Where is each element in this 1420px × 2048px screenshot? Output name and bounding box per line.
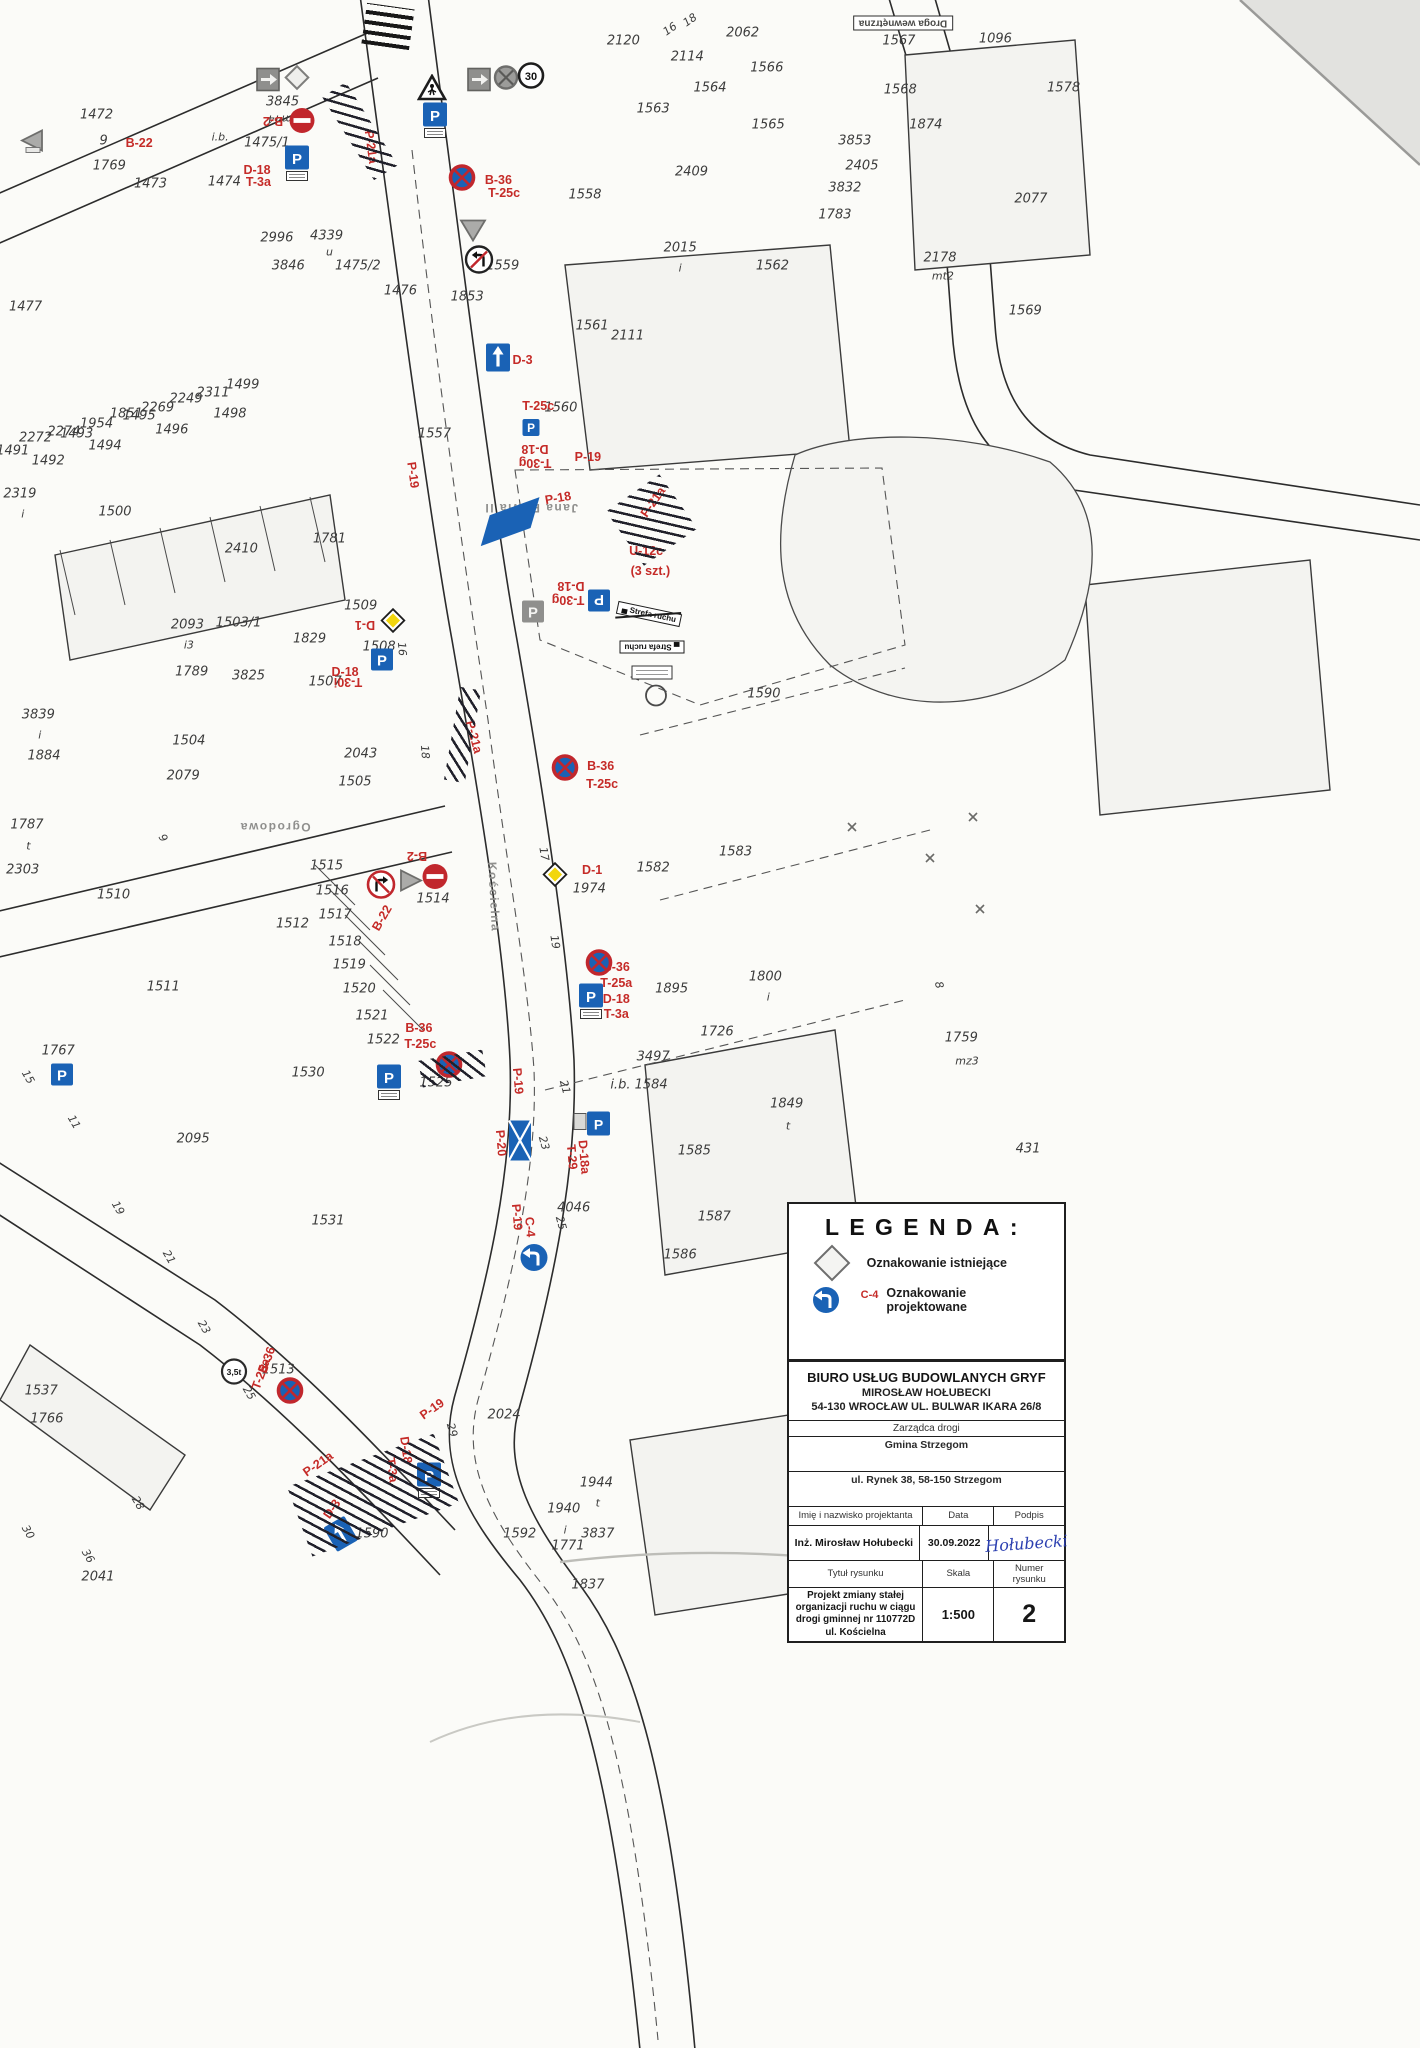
plot-number-label: 1569: [1009, 304, 1042, 319]
plot-number-label: 2409: [675, 165, 708, 180]
traffic-zone-end-sign-icon: ▄ Strefa ruchu: [616, 601, 682, 627]
plot-number-label: 1829: [293, 631, 326, 646]
park-marker-icon: [924, 851, 936, 869]
parking-sign-icon: P: [284, 144, 310, 187]
street-name-box: Droga wewnętrzna: [853, 15, 953, 30]
plot-number-label: 2043: [344, 746, 377, 761]
park-marker-icon: [974, 902, 986, 920]
plot-number-label: 15: [19, 1068, 37, 1087]
sign-code-label: D-18: [557, 579, 584, 593]
plot-number-label: 1853: [451, 289, 484, 304]
plot-number-label: 21: [160, 1248, 178, 1267]
no-stopping-sign-icon: [448, 164, 476, 197]
drawing-title: Projekt zmiany stałej organizacji ruchu …: [789, 1588, 924, 1641]
plot-number-label: 1585: [678, 1143, 711, 1158]
no-entry-sign-icon: [421, 862, 449, 895]
sign-code-label: P-19: [575, 450, 601, 464]
plot-number-label: 1974: [573, 881, 606, 896]
plot-number-label: 1522: [367, 1033, 400, 1048]
title-block: BIURO USŁUG BUDOWLANYCH GRYF MIROSŁAW HO…: [787, 1360, 1066, 1643]
plot-number-label: 1516: [316, 883, 349, 898]
sign-code-label: B-2: [407, 849, 427, 863]
plot-number-label: 2114: [671, 50, 704, 65]
no-right-turn-sign-icon: [366, 869, 396, 904]
parking-sign-with-plates-icon: P: [422, 101, 448, 144]
plot-number-label: t: [786, 1120, 790, 1133]
plot-number-label: 9: [100, 134, 108, 149]
plot-number-label: 1566: [750, 60, 783, 75]
svg-text:30: 30: [525, 71, 537, 83]
plot-number-label: i: [564, 1523, 567, 1536]
street-name-label: Kościelna: [485, 862, 503, 933]
plot-number-label: 1531: [311, 1213, 344, 1228]
plot-number-label: 1562: [756, 259, 789, 274]
plot-number-label: 19: [109, 1199, 127, 1218]
plot-number-label: 30: [19, 1523, 37, 1542]
plot-number-label: 1564: [693, 81, 726, 96]
plot-number-label: 3497: [637, 1049, 670, 1064]
parking-sign-icon: P: [50, 1063, 74, 1092]
plot-number-label: 1590: [747, 687, 780, 702]
sign-code-label: T-25c: [586, 777, 618, 791]
plot-number-label: 16: [395, 642, 409, 657]
svg-text:P: P: [384, 1070, 394, 1087]
company-owner: MIROSŁAW HOŁUBECKI: [793, 1387, 1060, 1399]
plot-number-label: 1726: [701, 1025, 734, 1040]
plot-number-label: i.b.: [212, 131, 229, 144]
plot-number-label: i: [767, 991, 770, 1004]
plot-number-label: 2120: [607, 33, 640, 48]
sign-code-label: T-25c: [522, 399, 554, 413]
sign-code-label: D-18: [522, 442, 549, 456]
reserved-parking-sign-icon: P: [573, 1111, 611, 1142]
plot-number-label: 3853: [838, 134, 871, 149]
plot-number-label: 2041: [81, 1569, 114, 1584]
priority-road-sign-icon: [541, 860, 569, 893]
sign-code-label: B-22: [369, 902, 395, 932]
plot-number-label: 1771: [551, 1539, 584, 1554]
plot-number-label: 1500: [98, 505, 131, 520]
yield-sign-existing-icon: [459, 219, 487, 248]
existing-arrow-sign-icon: [466, 66, 492, 97]
sign-code-label: (3 szt.): [631, 564, 671, 578]
parking-sign-with-plate-icon: P: [376, 1064, 402, 1107]
plot-number-label: 1537: [25, 1383, 58, 1398]
plot-number-label: 1583: [719, 844, 752, 859]
designer-header: Imię i nazwisko projektanta: [789, 1507, 924, 1525]
plot-number-label: t: [26, 839, 30, 852]
street-name-label: Ogrodowa: [240, 820, 311, 834]
svg-text:P: P: [586, 989, 596, 1006]
plot-number-label: 1940: [547, 1502, 580, 1517]
park-marker-icon: [967, 810, 979, 828]
no-left-turn-sign-icon: [464, 245, 494, 280]
plot-number-label: 1504: [172, 734, 205, 749]
plot-number-label: 1492: [32, 453, 65, 468]
plot-number-label: 2303: [6, 863, 39, 878]
plot-number-label: 1783: [818, 208, 851, 223]
priority-road-sign-icon: [379, 606, 407, 639]
drawing-title-header: Tytuł rysunku: [789, 1561, 924, 1587]
plot-number-label: 1472: [80, 107, 113, 122]
sign-code-label: T-25c: [404, 1037, 436, 1051]
plot-number-label: 1567: [882, 33, 915, 48]
date-header: Data: [923, 1507, 994, 1525]
plot-number-label: 18: [681, 11, 700, 30]
plot-number-label: 1520: [343, 982, 376, 997]
plot-number-label: 25: [553, 1214, 569, 1231]
plot-number-label: i3: [184, 639, 194, 652]
plot-number-label: 1586: [664, 1248, 697, 1263]
sign-code-label: B-36: [405, 1021, 432, 1035]
plot-number-label: 1568: [884, 83, 917, 98]
sign-code-label: T-25c: [488, 186, 520, 200]
plot-number-label: 1496: [155, 423, 188, 438]
plot-number-label: 19: [548, 934, 563, 950]
plot-number-label: 1475/2: [335, 259, 381, 274]
plot-number-label: 1473: [134, 177, 167, 192]
plot-number-label: 1518: [329, 935, 362, 950]
plot-number-label: 1895: [655, 982, 688, 997]
plot-number-label: 1800: [749, 969, 782, 984]
sign-code-label: T-3a: [604, 1007, 629, 1021]
plot-number-label: 1884: [27, 748, 60, 763]
plot-number-label: 1874: [909, 117, 942, 132]
plot-number-label: 1477: [9, 300, 42, 315]
weight-limit-plate-icon: 3,5t: [220, 1358, 248, 1391]
plot-number-label: 11: [65, 1113, 83, 1132]
sign-code-label: T-30g: [552, 593, 585, 607]
plot-number-label: 1519: [333, 957, 366, 972]
svg-text:P: P: [594, 591, 604, 607]
one-way-sign-icon: [485, 343, 511, 378]
plot-number-label: 23: [536, 1134, 552, 1151]
plot-number-label: 36: [79, 1547, 97, 1566]
sign-code-label: B-2: [263, 114, 283, 128]
plot-number-label: 1503/1: [216, 615, 262, 630]
parking-sign-icon: P: [587, 584, 611, 613]
plot-number-label: 3837: [581, 1526, 614, 1541]
sign-code-label: P-19: [417, 1396, 447, 1423]
hatched-road-marking: [606, 475, 697, 566]
sign-code-label: P-19: [404, 461, 422, 489]
plot-number-label: 1558: [568, 187, 601, 202]
existing-parking-sign-icon: P: [521, 600, 545, 629]
legend-item-existing: Oznakowanie istniejące: [811, 1250, 1050, 1276]
plot-number-label: 29: [443, 1421, 459, 1438]
plot-number-label: 1789: [175, 664, 208, 679]
sign-code-label: D-3: [512, 353, 532, 367]
legend-item-label: Oznakowanie istniejące: [867, 1256, 1007, 1270]
plot-number-label: 2405: [845, 158, 878, 173]
plot-number-label: 1510: [97, 887, 130, 902]
plot-number-label: 2079: [167, 769, 200, 784]
number-header: Numer rysunku: [994, 1561, 1064, 1587]
plot-number-label: 1563: [637, 101, 670, 116]
c4-sign-icon: [811, 1285, 867, 1315]
plot-number-label: 1561: [576, 318, 609, 333]
plot-number-label: 1511: [147, 980, 180, 995]
road-admin-name: Gmina Strzegom: [789, 1437, 1064, 1472]
signature-header: Podpis: [994, 1507, 1064, 1525]
legend-panel: LEGENDA: Oznakowanie istniejące C-4 Ozna…: [787, 1202, 1066, 1361]
plot-number-label: 2015: [664, 240, 697, 255]
traffic-plan-sheet: 1472917691473i.b.14743845m441475/1299643…: [0, 0, 1420, 2048]
plot-number-label: 1499: [226, 378, 259, 393]
company-block: BIURO USŁUG BUDOWLANYCH GRYF MIROSŁAW HO…: [789, 1362, 1064, 1421]
plot-number-label: 1582: [637, 861, 670, 876]
legend-title: LEGENDA:: [789, 1214, 1064, 1241]
drawing-number: 2: [994, 1588, 1064, 1641]
plot-number-label: mz3: [955, 1054, 979, 1067]
scale-header: Skala: [923, 1561, 994, 1587]
sign-code-label: D-1: [355, 618, 375, 632]
plot-number-label: 3825: [232, 668, 265, 683]
painted-envelope-marking: [507, 1118, 533, 1167]
plot-number-label: 28: [129, 1494, 147, 1513]
plot-number-label: 1578: [1047, 81, 1080, 96]
svg-text:P: P: [58, 1068, 68, 1084]
road-admin-header: Zarządca drogi: [789, 1421, 1064, 1437]
plot-number-label: 1512: [276, 916, 309, 931]
svg-text:P: P: [430, 108, 440, 125]
sign-code-label: B-36: [587, 759, 614, 773]
plot-number-label: 1759: [945, 1031, 978, 1046]
existing-no-stopping-sign-icon: [493, 64, 519, 95]
existing-arrow-sign-icon: [255, 66, 281, 97]
plot-number-label: 1521: [355, 1008, 388, 1023]
plot-number-label: 1505: [338, 775, 371, 790]
legend-item-projected: C-4 Oznakowanie projektowane: [811, 1285, 1050, 1315]
plot-number-label: 1515: [310, 859, 343, 874]
parking-sign-icon: P: [522, 418, 541, 442]
sign-code-label: P-19: [510, 1068, 526, 1096]
plot-number-label: 1592: [503, 1526, 536, 1541]
sign-code-label: T-30i: [334, 675, 363, 689]
zebra-crossing: [361, 3, 414, 50]
signature-value: Hołubecki: [988, 1523, 1065, 1562]
manhole-circle: [644, 684, 668, 713]
plot-number-label: 23: [195, 1318, 213, 1337]
plot-number-label: i: [38, 729, 41, 742]
sign-plate-icon: [631, 660, 673, 680]
plot-number-label: 2093: [171, 617, 204, 632]
sign-code-label: D-1: [582, 863, 602, 877]
plot-number-label: 1494: [89, 439, 122, 454]
plot-number-label: 1474: [208, 175, 241, 190]
plot-number-label: 3832: [828, 181, 861, 196]
plot-number-label: 21: [557, 1079, 573, 1096]
plot-number-label: 1769: [93, 158, 126, 173]
plot-number-label: 2062: [726, 25, 759, 40]
traffic-zone-sign-icon: ▄ Strefa ruchu: [619, 641, 684, 654]
plot-number-label: 1498: [213, 406, 246, 421]
yield-sign-existing-icon: [18, 128, 44, 159]
plot-number-label: i.b. 1584: [610, 1078, 667, 1093]
svg-text:P: P: [528, 606, 538, 622]
hatched-road-marking: [323, 82, 399, 180]
no-stopping-sign-icon: [585, 948, 613, 981]
plot-number-label: 1767: [42, 1043, 75, 1058]
plot-number-label: 1787: [10, 818, 43, 833]
plot-number-label: 2024: [488, 1408, 521, 1423]
plot-number-label: 4339: [310, 228, 343, 243]
company-address: 54-130 WROCŁAW UL. BULWAR IKARA 26/8: [793, 1401, 1060, 1413]
road-admin-address: ul. Rynek 38, 58-150 Strzegom: [789, 1472, 1064, 1507]
existing-priority-sign-icon: [284, 64, 310, 95]
plot-number-label: i: [21, 508, 24, 521]
map-annotations: 1472917691473i.b.14743845m441475/1299643…: [0, 0, 1420, 2048]
svg-text:P: P: [377, 653, 387, 669]
no-stopping-sign-icon: [276, 1376, 304, 1409]
plot-number-label: 1530: [292, 1066, 325, 1081]
no-stopping-sign-icon: [551, 754, 579, 787]
legend-item-label: Oznakowanie projektowane: [886, 1286, 1050, 1314]
plot-number-label: 9: [156, 831, 171, 844]
speed-limit-30-sign-icon: 30: [517, 61, 545, 94]
svg-text:P: P: [527, 422, 535, 435]
plot-number-label: 3846: [272, 259, 305, 274]
plot-number-label: 2996: [260, 230, 293, 245]
plot-number-label: 1944: [580, 1475, 613, 1490]
plot-number-label: 1517: [319, 908, 352, 923]
svg-text:P: P: [594, 1117, 603, 1133]
plot-number-label: 1491: [0, 443, 29, 458]
park-marker-icon: [846, 820, 858, 838]
sign-code-label: T-30g: [519, 456, 552, 470]
hatched-road-marking: [418, 1049, 487, 1087]
plot-number-label: 2311: [196, 386, 229, 401]
parking-sign-icon: P: [370, 647, 394, 676]
plot-number-label: 2319: [3, 486, 36, 501]
sign-code-label: C-4: [522, 1216, 538, 1237]
plot-number-label: 1766: [30, 1412, 63, 1427]
plot-number-label: 2095: [177, 1131, 210, 1146]
plot-number-label: 8: [931, 980, 945, 990]
plot-number-label: 1954: [80, 416, 113, 431]
plot-number-label: 4046: [557, 1201, 590, 1216]
plot-number-label: 1509: [344, 599, 377, 614]
plot-number-label: 1476: [384, 283, 417, 298]
plot-number-label: 3839: [22, 707, 55, 722]
svg-text:3,5t: 3,5t: [227, 1367, 242, 1377]
plot-number-label: 1587: [698, 1209, 731, 1224]
plot-number-label: 2410: [225, 541, 258, 556]
company-name: BIURO USŁUG BUDOWLANYCH GRYF: [793, 1370, 1060, 1385]
plot-number-label: mt2: [932, 270, 954, 283]
plot-number-label: 1849: [770, 1096, 803, 1111]
plot-number-label: 2111: [611, 328, 644, 343]
c4-sign-icon: [519, 1242, 549, 1277]
svg-text:P: P: [292, 151, 302, 168]
sign-code-label: T-29: [564, 1144, 580, 1170]
plot-number-label: u: [326, 245, 333, 258]
plot-number-label: 2077: [1014, 191, 1047, 206]
plot-number-label: 16: [661, 19, 680, 38]
plot-number-label: 1565: [752, 117, 785, 132]
plot-number-label: 1096: [979, 31, 1012, 46]
date-value: 30.09.2022: [920, 1526, 989, 1560]
plot-number-label: 431: [1016, 1141, 1041, 1156]
parking-sign-with-plate-icon: P: [578, 982, 604, 1025]
diamond-outline-icon: [813, 1245, 850, 1282]
designer-name: Inż. Mirosław Hołubecki: [789, 1526, 920, 1560]
plot-number-label: 18: [417, 744, 431, 759]
plot-number-label: 1781: [313, 531, 346, 546]
sign-code-label: T-3a: [246, 175, 271, 189]
plot-number-label: t: [596, 1497, 600, 1510]
scale-value: 1:500: [923, 1588, 994, 1641]
sign-code-label: B-22: [126, 136, 153, 150]
plot-number-label: i: [679, 262, 682, 275]
plot-number-label: 1557: [418, 427, 451, 442]
plot-number-label: 1837: [571, 1578, 604, 1593]
plot-number-label: 2178: [923, 251, 956, 266]
no-entry-sign-icon: [288, 106, 316, 139]
sign-code-label: D-18: [603, 992, 630, 1006]
